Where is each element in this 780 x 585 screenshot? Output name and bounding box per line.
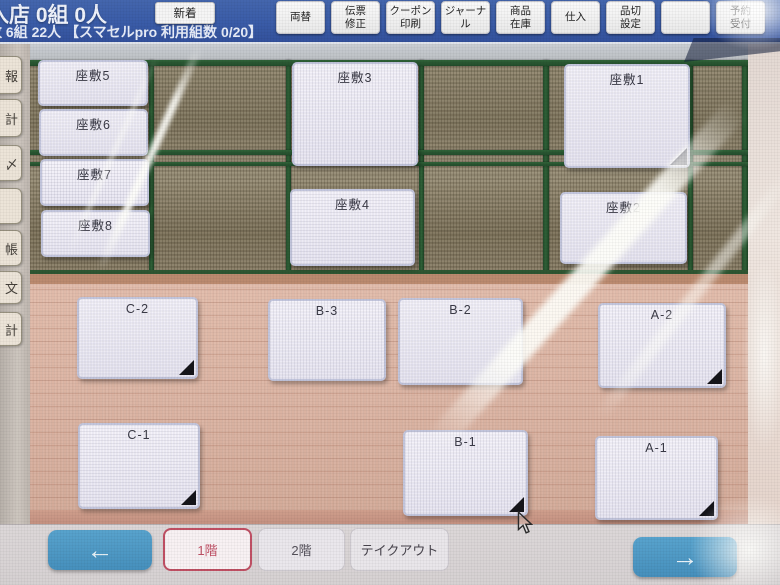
sidebar-item-report[interactable]: 報 — [0, 56, 22, 94]
sidebar-item-blank[interactable] — [0, 188, 22, 224]
sidebar-item-order[interactable]: 文 — [0, 271, 22, 304]
header-bar: 入店 0組 0人 数 6組 22人 【スマセルpro 利用組数 0/20】 新着… — [0, 0, 780, 44]
soldout-setting-button[interactable]: 品切 設定 — [606, 1, 655, 34]
table-zashiki-1[interactable]: 座敷1 — [564, 64, 690, 168]
table-label: 座敷6 — [41, 114, 146, 133]
table-zashiki-7[interactable]: 座敷7 — [40, 159, 149, 206]
table-label: 座敷1 — [566, 69, 688, 88]
coupon-print-button[interactable]: クーポン 印刷 — [386, 1, 435, 34]
table-label: A-1 — [597, 441, 716, 455]
sidebar-item-account[interactable]: 計 — [0, 312, 22, 346]
table-zashiki-4[interactable]: 座敷4 — [290, 189, 415, 266]
table-B-2[interactable]: B-2 — [398, 298, 523, 385]
table-label: 座敷3 — [294, 67, 416, 86]
slip-edit-button[interactable]: 伝票 修正 — [331, 1, 380, 34]
table-label: C-2 — [79, 302, 196, 316]
table-label: 座敷8 — [43, 215, 148, 234]
table-B-3[interactable]: B-3 — [268, 299, 386, 381]
wall-strip — [30, 42, 748, 60]
blank-button[interactable] — [661, 1, 710, 34]
table-zashiki-5[interactable]: 座敷5 — [38, 60, 148, 106]
stock-button[interactable]: 商品 在庫 — [496, 1, 545, 34]
table-label: B-3 — [270, 304, 384, 318]
header-menu: 両替 伝票 修正 クーポン 印刷 ジャーナル 商品 在庫 仕入 品切 設定 予約… — [276, 1, 765, 34]
table-zashiki-6[interactable]: 座敷6 — [39, 109, 148, 156]
sidebar-item-total[interactable]: 計 — [0, 99, 22, 137]
table-B-1[interactable]: B-1 — [403, 430, 528, 516]
tab-floor-2[interactable]: 2階 — [258, 528, 345, 571]
sidebar-item-closing[interactable]: 〆 — [0, 145, 22, 181]
sidebar-item-ledger[interactable]: 帳 — [0, 230, 22, 266]
purchase-button[interactable]: 仕入 — [551, 1, 600, 34]
group-count-stats: 数 6組 22人 【スマセルpro 利用組数 0/20】 — [0, 22, 262, 42]
left-arrow-icon: ← — [87, 535, 114, 566]
table-label: B-1 — [405, 435, 526, 449]
tab-takeout[interactable]: テイクアウト — [350, 528, 449, 571]
table-A-2[interactable]: A-2 — [598, 303, 726, 388]
tatami-wood-border — [30, 270, 748, 284]
table-label: 座敷2 — [562, 197, 685, 216]
new-arrivals-button[interactable]: 新着 — [155, 2, 215, 24]
journal-button[interactable]: ジャーナル — [441, 1, 490, 34]
prev-floor-button[interactable]: ← — [48, 530, 152, 570]
right-arrow-icon: → — [672, 542, 699, 573]
tab-floor-1[interactable]: 1階 — [163, 528, 252, 571]
table-zashiki-8[interactable]: 座敷8 — [41, 210, 150, 257]
reservation-button[interactable]: 予約 受付 — [716, 1, 765, 34]
table-label: 座敷4 — [292, 194, 413, 213]
table-label: B-2 — [400, 303, 521, 317]
table-A-1[interactable]: A-1 — [595, 436, 718, 520]
table-label: A-2 — [600, 308, 724, 322]
table-C-2[interactable]: C-2 — [77, 297, 198, 379]
table-label: 座敷5 — [40, 65, 146, 84]
exchange-button[interactable]: 両替 — [276, 1, 325, 34]
table-C-1[interactable]: C-1 — [78, 423, 200, 509]
table-label: C-1 — [80, 428, 198, 442]
pos-floor-map-screen: 入店 0組 0人 数 6組 22人 【スマセルpro 利用組数 0/20】 新着… — [0, 0, 780, 585]
next-floor-button[interactable]: → — [633, 537, 737, 577]
screen-right-edge — [748, 42, 780, 524]
table-label: 座敷7 — [42, 164, 147, 183]
table-zashiki-3[interactable]: 座敷3 — [292, 62, 418, 166]
table-zashiki-2[interactable]: 座敷2 — [560, 192, 687, 264]
